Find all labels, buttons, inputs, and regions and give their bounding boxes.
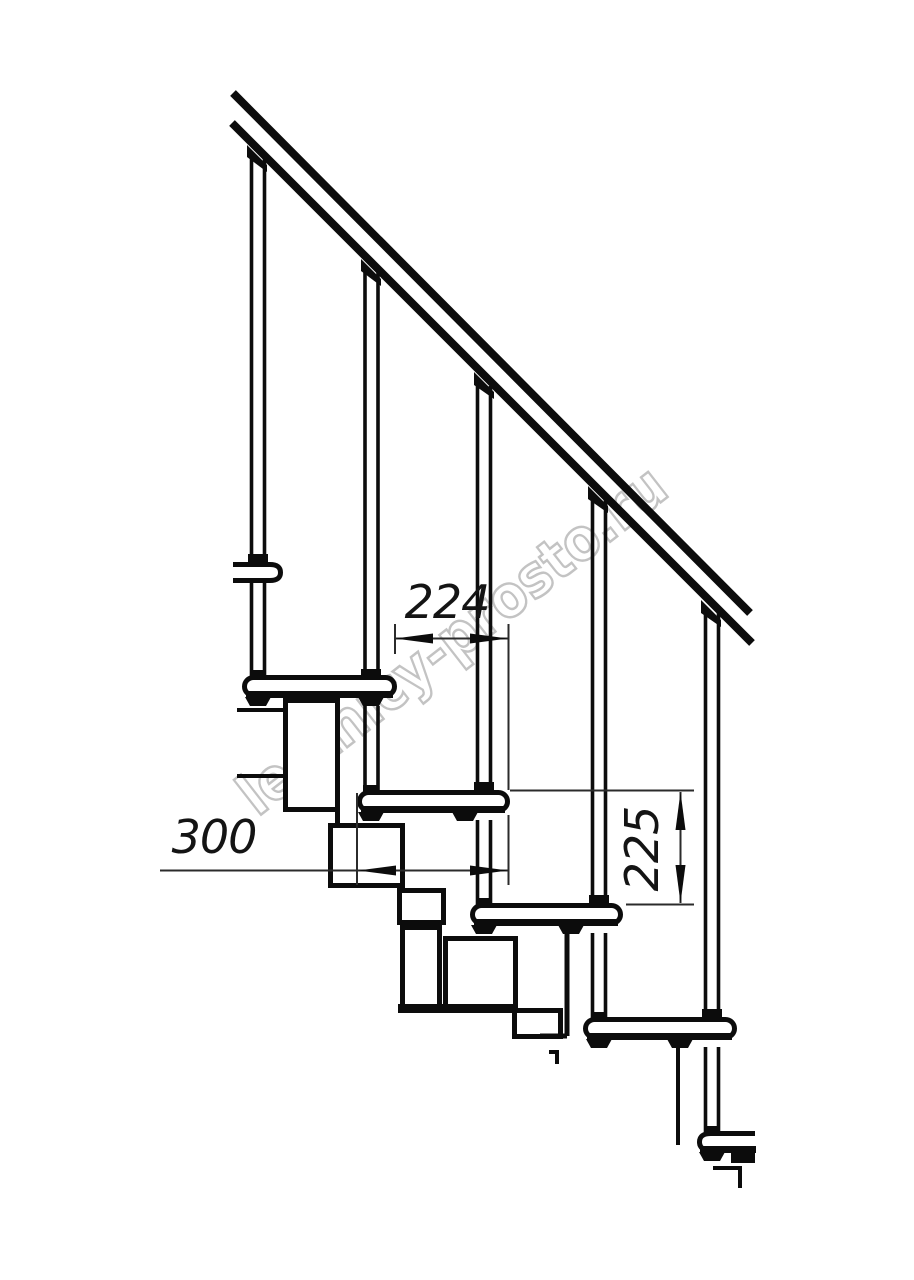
dim-300-value: 300: [172, 810, 257, 864]
stair-drawing-svg: lestnicy-prosto.ru: [0, 0, 914, 1280]
collar: [248, 554, 268, 562]
fading-cut-hook-1: [549, 1052, 557, 1064]
collar: [250, 670, 266, 677]
bolt: [558, 925, 584, 934]
fading-cut-hook-2: [713, 1168, 740, 1188]
tread-3-shadow: [474, 919, 618, 926]
collar: [591, 1012, 607, 1019]
collar: [702, 1009, 722, 1017]
tread-4-shadow: [587, 1033, 732, 1040]
tread-2-shadow: [361, 806, 505, 813]
tread-0: [233, 565, 281, 581]
collar: [363, 785, 379, 792]
dim-224-value: 224: [405, 575, 490, 629]
collar: [589, 895, 609, 903]
dim-225-arrow-down-icon: [676, 865, 686, 903]
collar: [474, 782, 494, 790]
bolt: [667, 1039, 693, 1048]
module-b: [331, 826, 403, 886]
bolt: [471, 925, 497, 934]
module-c: [446, 939, 516, 1010]
drawing-canvas: lestnicy-prosto.ru: [0, 0, 914, 1280]
module-b-neck-collar: [400, 891, 444, 923]
dim-225-value: 225: [615, 807, 669, 892]
tread-1-shadow: [246, 691, 393, 698]
tread-5-shadow: [700, 1146, 756, 1153]
bolt: [699, 1152, 725, 1161]
module-a: [286, 701, 338, 810]
collar: [704, 1126, 720, 1133]
dimension-225: 225: [510, 791, 694, 905]
module-d-collar: [515, 1011, 561, 1037]
baluster-1: [247, 145, 268, 677]
bolt: [586, 1039, 612, 1048]
bolt-cut-blob: [731, 1152, 755, 1163]
baluster-5: [701, 600, 722, 1133]
collar: [361, 669, 381, 677]
bolt: [245, 697, 271, 706]
collar: [476, 898, 492, 905]
module-b-neck-shaft: [403, 928, 440, 1010]
dim-225-arrow-up-icon: [676, 792, 686, 830]
stringer-modules: [237, 701, 740, 1189]
module-c-base-band: [398, 1004, 518, 1013]
bolt: [452, 812, 478, 821]
bolt: [358, 812, 384, 821]
